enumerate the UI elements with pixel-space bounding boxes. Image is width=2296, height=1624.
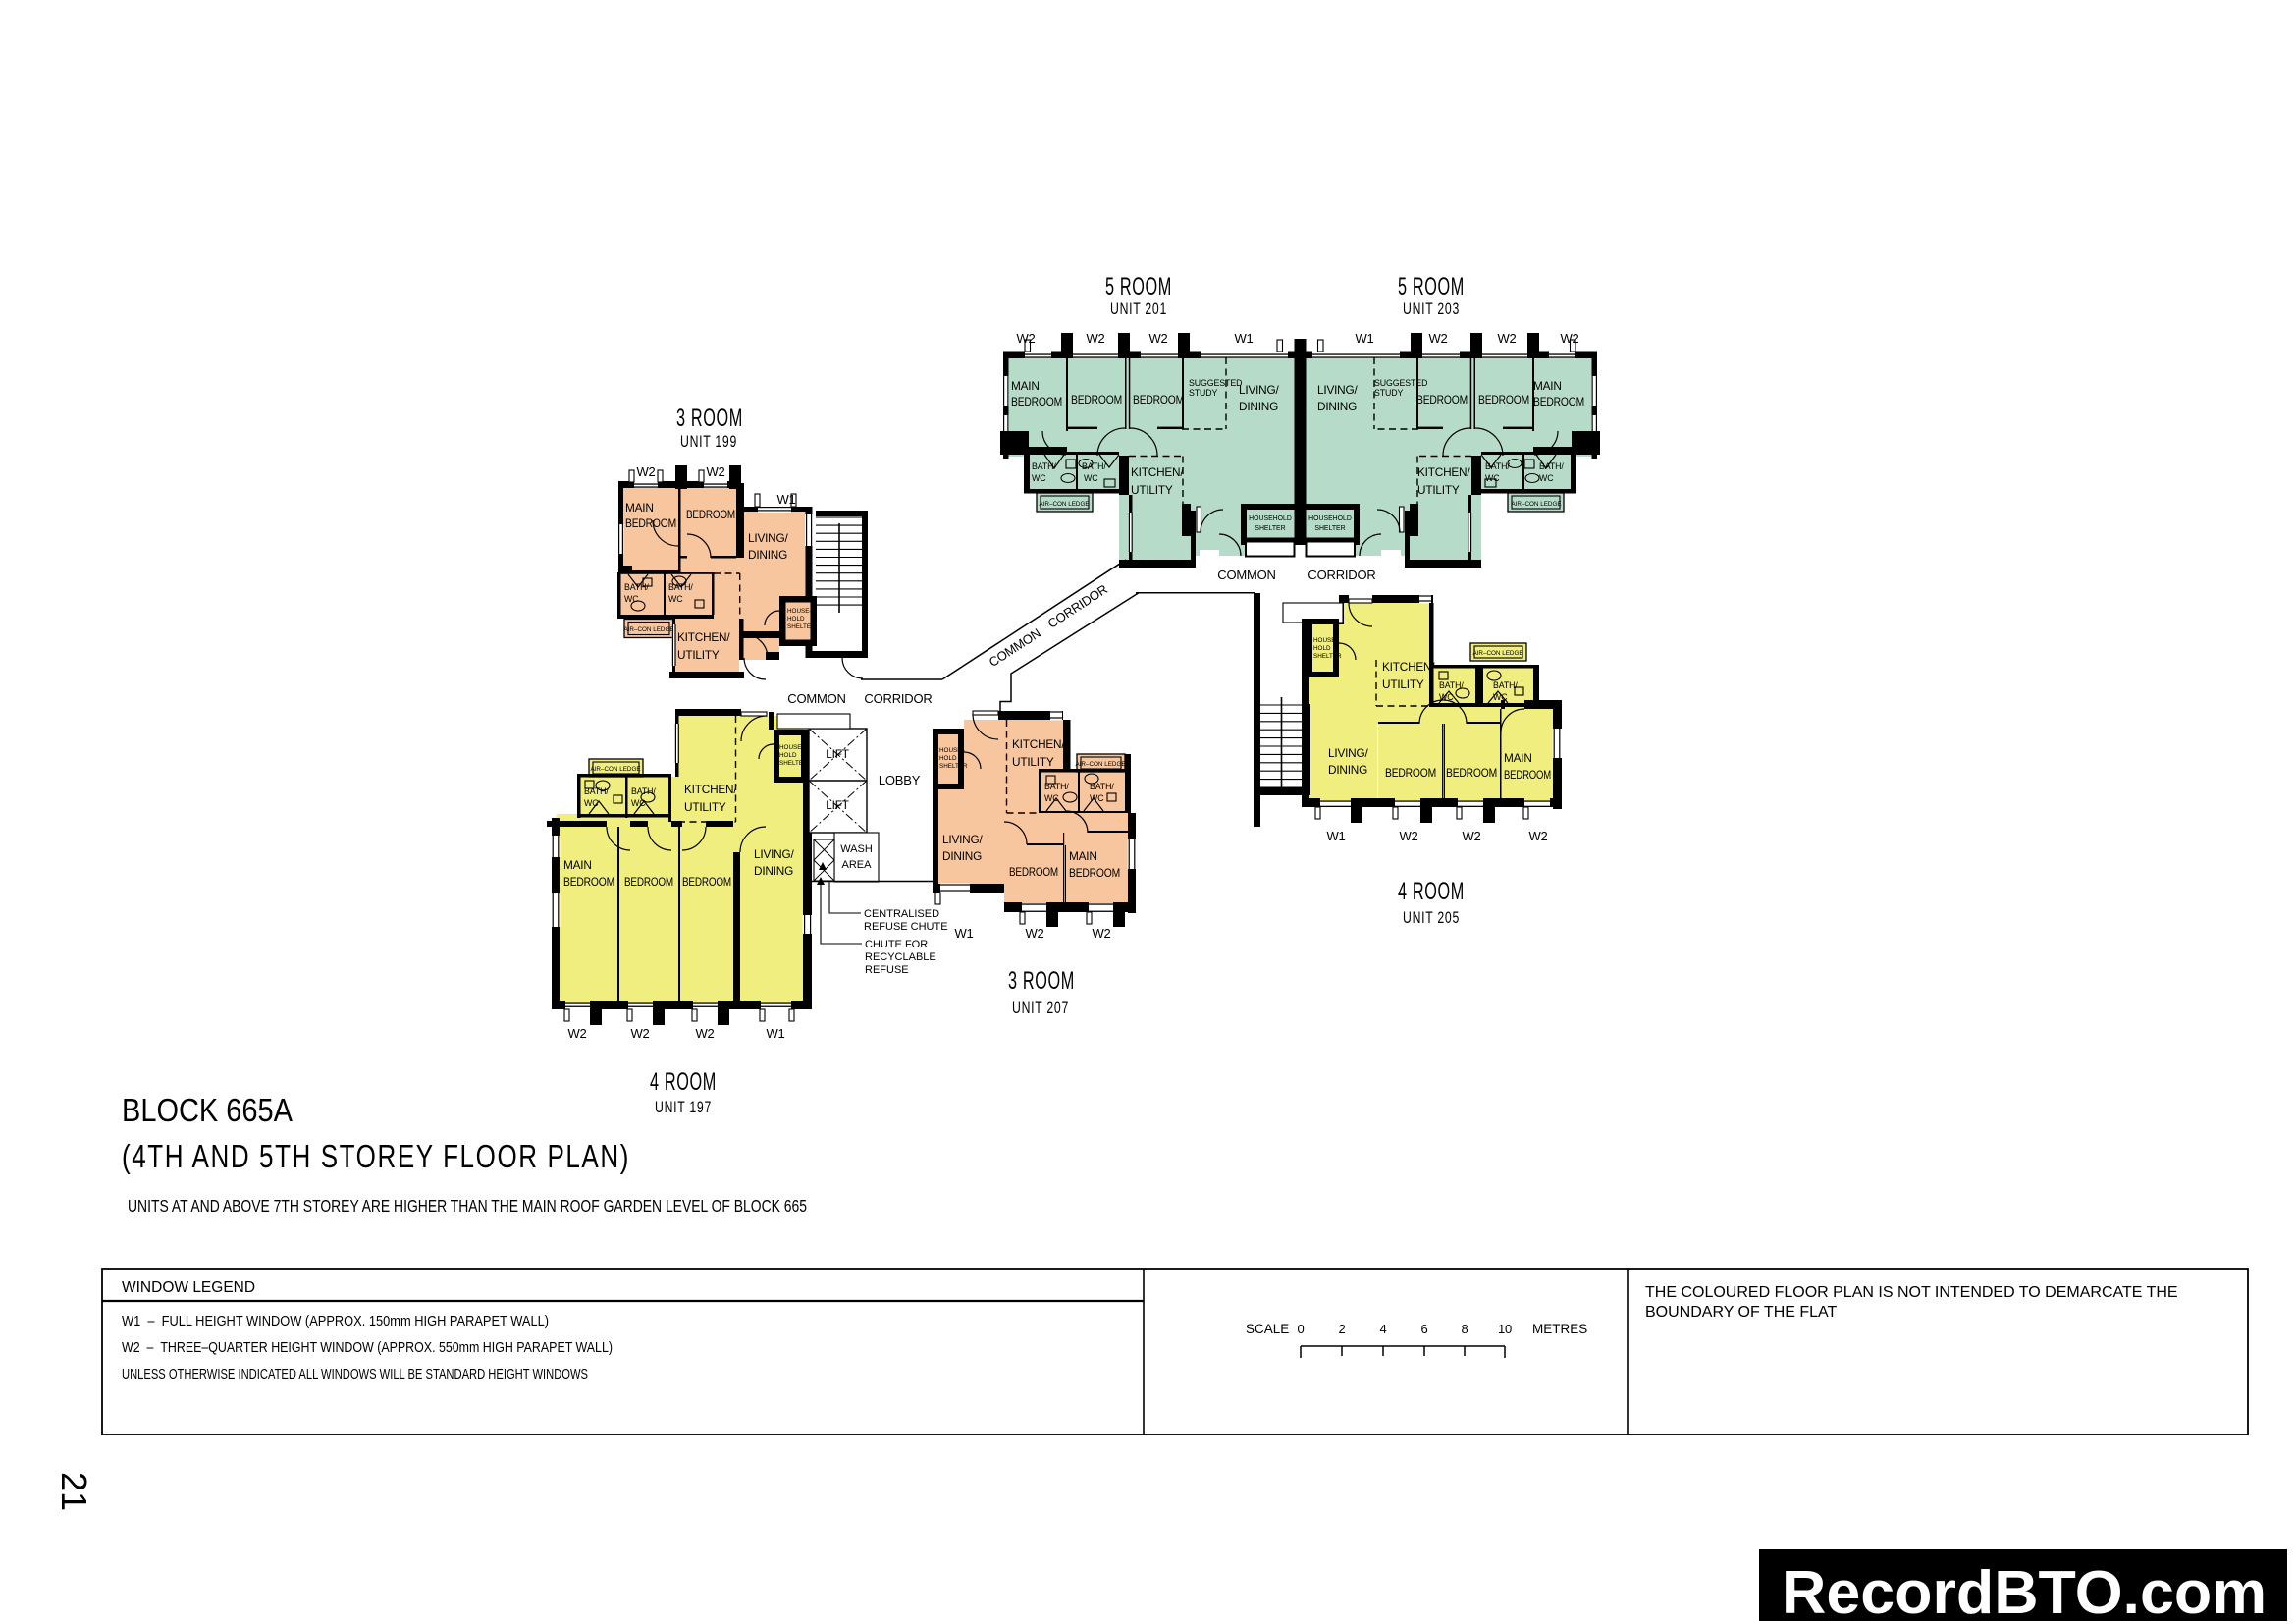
svg-text:BEDROOM: BEDROOM (1504, 768, 1551, 782)
svg-text:BEDROOM: BEDROOM (1446, 766, 1497, 780)
svg-text:BEDROOM: BEDROOM (1009, 865, 1058, 879)
svg-text:UTILITY: UTILITY (1382, 677, 1424, 691)
svg-text:WC: WC (668, 594, 683, 604)
svg-text:KITCHEN/: KITCHEN/ (677, 630, 730, 644)
svg-text:KITCHEN/: KITCHEN/ (1131, 465, 1184, 479)
svg-text:W2 – THREE–QUARTER HEIGHT WI: W2 – THREE–QUARTER HEIGHT WINDOW (APPROX… (122, 1339, 613, 1356)
svg-text:BATH/: BATH/ (1493, 680, 1518, 690)
svg-text:UNLESS OTHERWISE INDICATED ALL: UNLESS OTHERWISE INDICATED ALL WINDOWS W… (122, 1366, 588, 1382)
svg-text:W2: W2 (636, 464, 655, 479)
svg-text:WC: WC (1539, 473, 1554, 483)
svg-text:AIR–CON LEDGE: AIR–CON LEDGE (1511, 501, 1561, 508)
svg-text:(4TH AND 5TH STOREY FLOOR PLAN: (4TH AND 5TH STOREY FLOOR PLAN) (122, 1138, 630, 1174)
svg-text:BATH/: BATH/ (668, 582, 693, 592)
svg-text:UNIT 205: UNIT 205 (1403, 908, 1460, 927)
svg-text:UNITS AT AND ABOVE 7TH STOREY: UNITS AT AND ABOVE 7TH STOREY ARE HIGHER… (128, 1196, 807, 1216)
svg-text:KITCHEN/: KITCHEN/ (1417, 465, 1470, 479)
svg-text:HOLD: HOLD (1313, 645, 1331, 652)
svg-text:LOBBY: LOBBY (879, 773, 921, 787)
svg-text:CORRIDOR: CORRIDOR (1308, 568, 1375, 582)
svg-text:BATH/: BATH/ (1439, 680, 1464, 690)
svg-text:DINING: DINING (754, 864, 793, 878)
svg-text:W2: W2 (630, 1026, 649, 1041)
svg-text:SHELTER: SHELTER (787, 623, 816, 630)
svg-text:W2: W2 (695, 1026, 714, 1041)
svg-text:W1: W1 (776, 492, 795, 507)
svg-text:BEDROOM: BEDROOM (1533, 395, 1584, 408)
svg-text:W2: W2 (1462, 829, 1480, 843)
svg-text:WC: WC (1485, 473, 1500, 483)
svg-text:BEDROOM: BEDROOM (1069, 866, 1120, 880)
svg-text:BATH/: BATH/ (1485, 461, 1510, 471)
svg-text:THE COLOURED FLOOR PLAN IS NOT: THE COLOURED FLOOR PLAN IS NOT INTENDED … (1645, 1284, 2178, 1301)
svg-text:METRES: METRES (1532, 1322, 1587, 1336)
svg-text:HOLD: HOLD (787, 616, 805, 623)
svg-text:W2: W2 (1528, 829, 1547, 843)
svg-text:BATH/: BATH/ (624, 582, 649, 592)
svg-text:SHELTER: SHELTER (1314, 525, 1345, 532)
svg-text:8: 8 (1461, 1322, 1468, 1336)
svg-text:W2: W2 (706, 464, 724, 479)
svg-text:HOUSE–: HOUSE– (787, 608, 813, 615)
svg-text:0: 0 (1297, 1322, 1304, 1336)
svg-text:AIR–CON LEDGE: AIR–CON LEDGE (1472, 650, 1522, 657)
svg-text:BATH/: BATH/ (631, 786, 656, 796)
svg-text:BEDROOM: BEDROOM (563, 875, 614, 889)
svg-text:WC: WC (1084, 473, 1098, 483)
svg-text:UTILITY: UTILITY (677, 648, 720, 662)
svg-text:BATH/: BATH/ (1090, 782, 1114, 791)
svg-text:21: 21 (54, 1472, 94, 1511)
svg-text:WC: WC (584, 798, 599, 808)
svg-text:DINING: DINING (942, 849, 982, 863)
svg-text:W2: W2 (1428, 331, 1447, 346)
svg-text:MAIN: MAIN (1533, 379, 1562, 393)
svg-text:HOLD: HOLD (779, 752, 797, 759)
svg-text:KITCHEN/: KITCHEN/ (1382, 660, 1435, 674)
svg-text:MAIN: MAIN (1011, 379, 1040, 393)
svg-text:BEDROOM: BEDROOM (1011, 395, 1062, 408)
svg-text:UTILITY: UTILITY (1131, 483, 1173, 497)
svg-text:HOUSEHOLD: HOUSEHOLD (1249, 515, 1292, 522)
svg-text:LIVING/: LIVING/ (748, 531, 788, 545)
svg-text:WC: WC (1439, 692, 1454, 702)
svg-text:LIVING/: LIVING/ (942, 833, 983, 846)
svg-text:WC: WC (624, 594, 639, 604)
svg-text:REFUSE CHUTE: REFUSE CHUTE (864, 921, 948, 933)
svg-text:WC: WC (1493, 692, 1508, 702)
svg-text:UTILITY: UTILITY (1012, 755, 1054, 769)
svg-text:W1: W1 (954, 926, 973, 941)
svg-text:BEDROOM: BEDROOM (1416, 393, 1468, 406)
svg-text:UNIT 197: UNIT 197 (655, 1098, 712, 1116)
svg-text:AIR–CON LEDGE: AIR–CON LEDGE (1075, 761, 1125, 768)
svg-text:BEDROOM: BEDROOM (624, 875, 673, 889)
svg-text:HOUSEHOLD: HOUSEHOLD (1308, 515, 1352, 522)
svg-text:SCALE: SCALE (1246, 1322, 1289, 1336)
svg-text:DINING: DINING (1328, 763, 1367, 777)
svg-text:HOLD: HOLD (939, 755, 957, 762)
svg-text:STUDY: STUDY (1374, 388, 1404, 398)
svg-text:W1: W1 (1326, 829, 1345, 843)
svg-text:3 ROOM: 3 ROOM (1008, 967, 1075, 995)
svg-text:W1: W1 (1234, 331, 1253, 346)
svg-text:RECYCLABLE: RECYCLABLE (865, 951, 936, 963)
svg-text:CHUTE FOR: CHUTE FOR (865, 939, 928, 950)
svg-text:6: 6 (1420, 1322, 1427, 1336)
svg-text:WC: WC (1090, 793, 1104, 803)
svg-text:KITCHEN/: KITCHEN/ (1012, 737, 1065, 751)
svg-text:BEDROOM: BEDROOM (1071, 393, 1122, 406)
svg-text:AIR–CON LEDGE: AIR–CON LEDGE (1039, 501, 1089, 508)
svg-text:WC: WC (1044, 793, 1059, 803)
svg-text:4 ROOM: 4 ROOM (1398, 878, 1465, 905)
svg-text:REFUSE: REFUSE (865, 964, 909, 976)
svg-text:LIVING/: LIVING/ (754, 847, 794, 861)
svg-text:LIVING/: LIVING/ (1328, 746, 1368, 760)
svg-text:W2: W2 (567, 1026, 586, 1041)
svg-text:AREA: AREA (842, 859, 873, 871)
svg-text:BATH/: BATH/ (1082, 461, 1106, 471)
svg-text:COMMON: COMMON (1217, 568, 1275, 582)
svg-text:W1 – FULL HEIGHT WINDOW (APP: W1 – FULL HEIGHT WINDOW (APPROX. 150mm H… (122, 1313, 549, 1329)
svg-text:SHELTER: SHELTER (939, 763, 968, 770)
svg-text:BATH/: BATH/ (1032, 461, 1056, 471)
svg-text:MAIN: MAIN (1504, 751, 1532, 765)
svg-text:WC: WC (1032, 473, 1046, 483)
svg-text:SHELTER: SHELTER (779, 760, 808, 767)
svg-text:BEDROOM: BEDROOM (686, 508, 735, 521)
svg-text:UNIT 207: UNIT 207 (1012, 999, 1069, 1017)
svg-text:BATH/: BATH/ (1044, 782, 1069, 791)
svg-text:10: 10 (1498, 1322, 1512, 1336)
svg-text:UTILITY: UTILITY (1417, 483, 1460, 497)
svg-text:BEDROOM: BEDROOM (682, 875, 731, 889)
svg-text:LIVING/: LIVING/ (1239, 383, 1279, 397)
svg-text:BLOCK 665A: BLOCK 665A (122, 1092, 293, 1128)
svg-text:MAIN: MAIN (563, 858, 592, 872)
svg-text:SUGGESTED: SUGGESTED (1374, 378, 1427, 388)
svg-text:SHELTER: SHELTER (1313, 653, 1342, 660)
svg-text:STUDY: STUDY (1189, 388, 1218, 398)
svg-text:SUGGESTED: SUGGESTED (1189, 378, 1242, 388)
svg-text:4 ROOM: 4 ROOM (650, 1068, 717, 1096)
svg-text:KITCHEN/: KITCHEN/ (684, 783, 737, 796)
svg-text:WASH: WASH (840, 843, 873, 855)
svg-text:LIFT: LIFT (826, 747, 848, 761)
svg-text:W1: W1 (1355, 331, 1373, 346)
svg-text:HOUSE–: HOUSE– (779, 744, 805, 751)
svg-text:UTILITY: UTILITY (684, 800, 726, 814)
svg-text:4: 4 (1379, 1322, 1386, 1336)
svg-text:LIFT: LIFT (826, 798, 848, 812)
svg-text:W2: W2 (1560, 331, 1578, 346)
svg-text:WC: WC (631, 798, 646, 808)
svg-text:HOUSE–: HOUSE– (939, 747, 965, 754)
svg-text:W2: W2 (1016, 331, 1035, 346)
svg-text:AIR–CON LEDGE: AIR–CON LEDGE (623, 626, 673, 633)
svg-text:UNIT 201: UNIT 201 (1110, 299, 1167, 318)
svg-text:W2: W2 (1148, 331, 1167, 346)
svg-text:W2: W2 (1092, 926, 1110, 941)
svg-text:LIVING/: LIVING/ (1317, 383, 1358, 397)
svg-text:3 ROOM: 3 ROOM (676, 405, 743, 432)
svg-text:W2: W2 (1025, 926, 1043, 941)
svg-text:AIR–CON LEDGE: AIR–CON LEDGE (590, 766, 640, 773)
svg-text:UNIT 199: UNIT 199 (680, 432, 737, 451)
svg-text:BOUNDARY OF THE FLAT: BOUNDARY OF THE FLAT (1645, 1304, 1838, 1321)
svg-text:WINDOW LEGEND: WINDOW LEGEND (122, 1279, 255, 1296)
svg-text:BEDROOM: BEDROOM (1133, 393, 1184, 406)
svg-text:DINING: DINING (748, 548, 787, 562)
svg-text:HOUSE–: HOUSE– (1313, 637, 1339, 644)
svg-text:5 ROOM: 5 ROOM (1398, 273, 1465, 300)
svg-text:W2: W2 (1399, 829, 1417, 843)
svg-text:BATH/: BATH/ (584, 786, 609, 796)
svg-text:CENTRALISED: CENTRALISED (864, 908, 939, 920)
svg-text:MAIN: MAIN (1069, 849, 1097, 863)
svg-text:UNIT 203: UNIT 203 (1403, 299, 1460, 318)
svg-text:DINING: DINING (1239, 400, 1278, 413)
svg-text:CORRIDOR: CORRIDOR (864, 691, 932, 706)
svg-text:COMMON: COMMON (787, 691, 845, 706)
svg-text:RecordBTO.com: RecordBTO.com (1782, 1559, 2267, 1624)
svg-text:5 ROOM: 5 ROOM (1105, 273, 1172, 300)
svg-text:2: 2 (1338, 1322, 1345, 1336)
svg-text:SHELTER: SHELTER (1255, 525, 1285, 532)
svg-text:W2: W2 (1497, 331, 1516, 346)
svg-text:W1: W1 (766, 1026, 784, 1041)
svg-text:W2: W2 (1086, 331, 1104, 346)
svg-text:MAIN: MAIN (625, 501, 654, 514)
svg-text:BEDROOM: BEDROOM (1478, 393, 1529, 406)
svg-text:BEDROOM: BEDROOM (1385, 766, 1436, 780)
svg-text:BEDROOM: BEDROOM (625, 516, 676, 530)
svg-text:DINING: DINING (1317, 400, 1357, 413)
svg-text:BATH/: BATH/ (1539, 461, 1564, 471)
